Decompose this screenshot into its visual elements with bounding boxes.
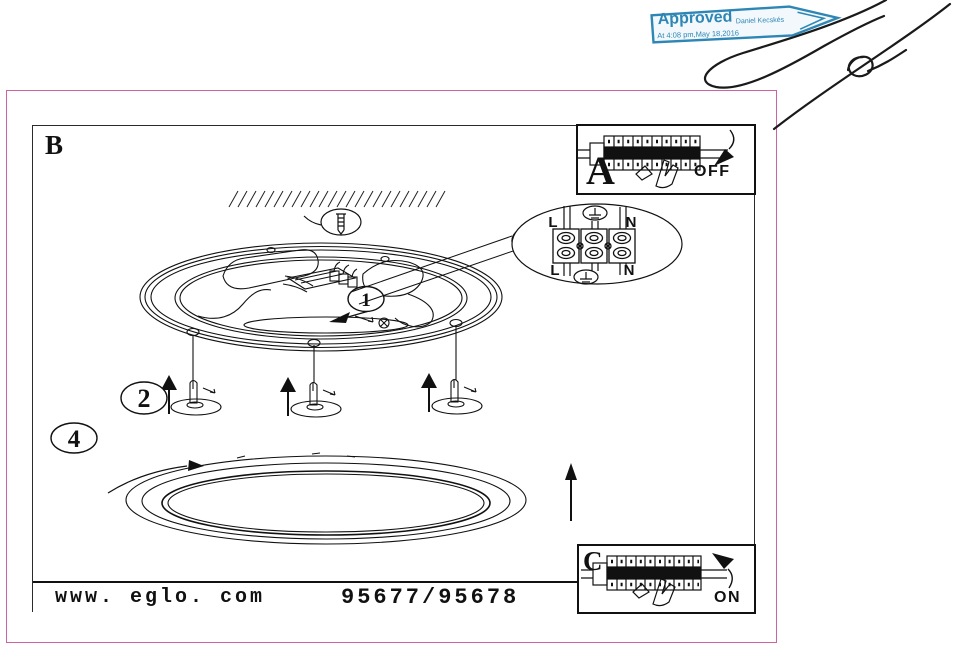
drawing-border: B: [6, 90, 777, 643]
breaker-panel-icon: [581, 556, 727, 590]
switch-direction-arrow: [714, 130, 734, 166]
mounting-plate: [140, 243, 502, 351]
detail-a-state: OFF: [694, 163, 731, 180]
website-text: www. eglo. com: [55, 586, 265, 609]
detail-c-label: C: [583, 546, 603, 576]
callout-4: 4: [51, 423, 97, 453]
up-arrow-icon: [161, 375, 177, 390]
model-number-text: 95677/95678: [341, 585, 519, 610]
installation-diagram: 1 3: [33, 126, 754, 611]
small-arrow-icon: [355, 316, 373, 322]
label-neutral-top: N: [626, 214, 637, 231]
screw-middle: [291, 345, 341, 417]
callout-1: 1: [348, 287, 384, 312]
label-neutral-bottom: N: [624, 262, 635, 279]
detail-a-label: A: [586, 148, 615, 189]
screw-left: [171, 335, 221, 415]
up-arrow-icon: [421, 373, 437, 388]
lift-arrow-icon: [565, 463, 577, 521]
callout-4-number: 4: [68, 426, 81, 453]
terminal-block: [288, 262, 357, 289]
stamp-title: Approved: [657, 9, 732, 30]
instruction-sheet: Approved Daniel Kecskés At 4:08 pm,May 1…: [0, 0, 960, 647]
ceiling-hatch: [229, 191, 445, 207]
wiring-channels: [198, 250, 433, 333]
label-live-bottom: L: [550, 262, 559, 279]
drawing-frame: B: [32, 125, 755, 612]
wiring-detail: 3: [512, 204, 682, 284]
approved-stamp: Approved Daniel Kecskés At 4:08 pm,May 1…: [647, 2, 848, 51]
detail-a-power-off: A OFF: [576, 124, 756, 195]
detail-c-power-on: C ON: [577, 544, 756, 614]
detail-c-state: ON: [714, 589, 741, 606]
callout-2: 2: [121, 382, 167, 414]
diffuser-clips: [237, 453, 355, 458]
up-arrow-icon: [280, 377, 296, 392]
callout-2-number: 2: [138, 384, 151, 413]
wall-plug-icon: [336, 214, 346, 234]
label-live-top: L: [548, 214, 557, 231]
wall-plug-callout: [304, 209, 361, 235]
